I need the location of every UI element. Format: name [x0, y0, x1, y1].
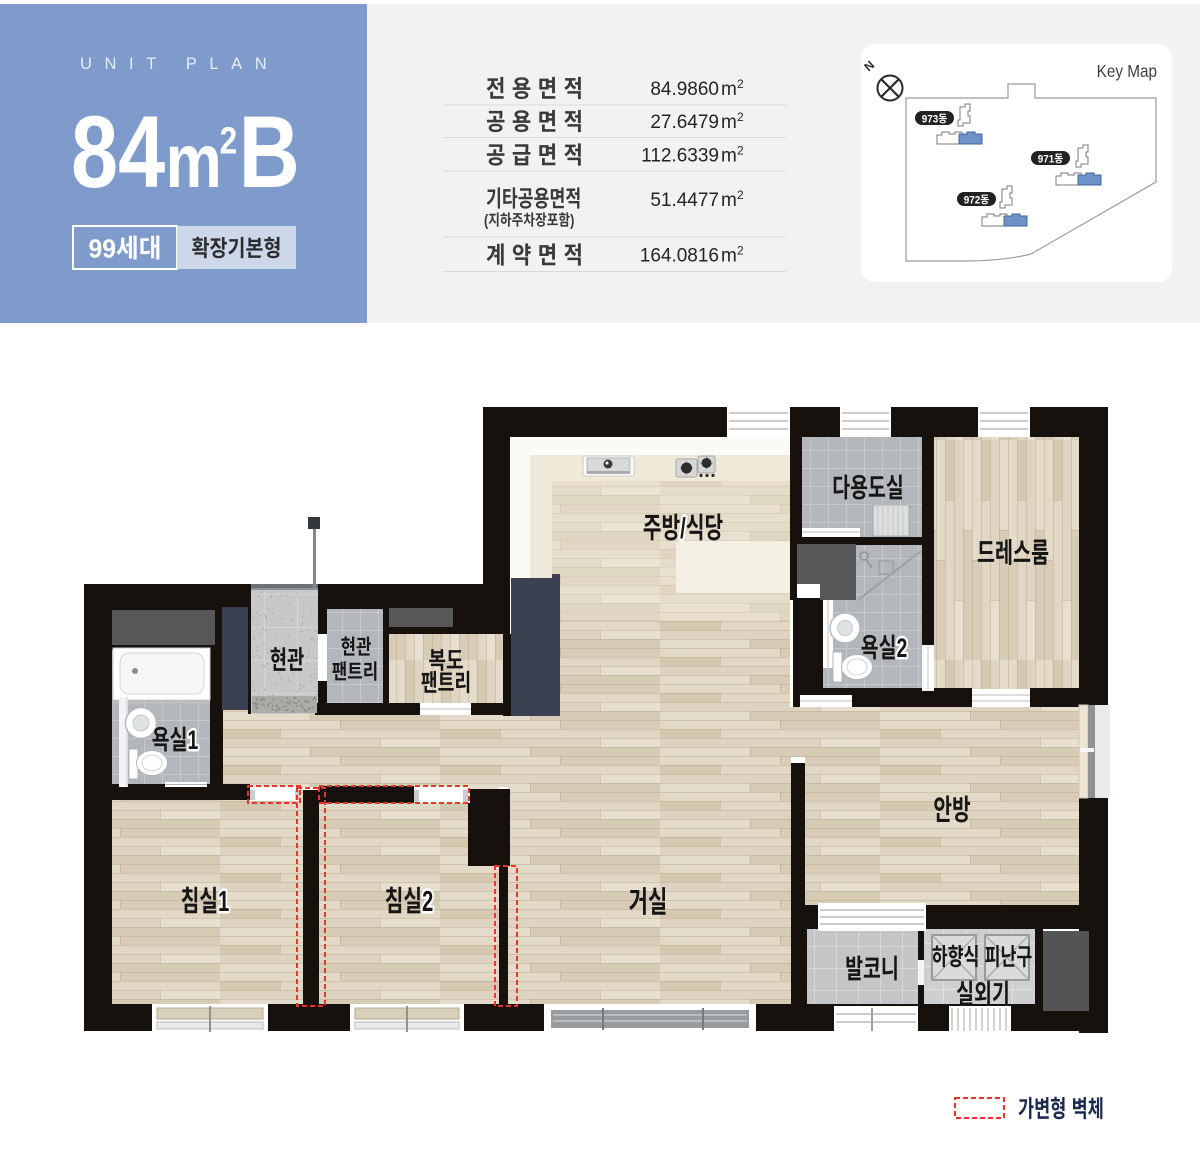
svg-text:164.0816: 164.0816	[640, 246, 719, 267]
svg-text:1: 1	[218, 886, 229, 918]
svg-text:51.4477: 51.4477	[650, 190, 719, 211]
svg-text:972: 972	[964, 195, 981, 207]
svg-text:(: (	[484, 212, 488, 229]
svg-text:971: 971	[1038, 154, 1055, 166]
svg-text:973: 973	[922, 114, 939, 126]
svg-text:2: 2	[422, 886, 433, 918]
svg-text:2: 2	[737, 77, 744, 91]
svg-text:112.6339: 112.6339	[641, 146, 719, 167]
svg-text:m: m	[721, 112, 737, 133]
svg-text:m: m	[721, 146, 737, 167]
svg-text:27.6479: 27.6479	[650, 112, 719, 133]
svg-text:): )	[570, 212, 574, 229]
svg-text:m: m	[166, 118, 222, 203]
svg-text:2: 2	[220, 120, 238, 162]
svg-text:84.9860: 84.9860	[650, 79, 719, 100]
svg-text:m: m	[721, 79, 737, 100]
svg-text:2: 2	[737, 110, 744, 124]
svg-text:84: 84	[71, 95, 165, 209]
svg-text:B: B	[239, 95, 300, 209]
svg-text:2: 2	[737, 144, 744, 158]
svg-text:99: 99	[89, 235, 116, 264]
svg-text:2: 2	[737, 244, 744, 258]
svg-text:2: 2	[737, 188, 744, 202]
svg-text:UNIT PLAN: UNIT PLAN	[80, 55, 279, 73]
svg-text:m: m	[721, 246, 737, 267]
svg-text:2: 2	[896, 633, 907, 663]
svg-text:m: m	[721, 190, 737, 211]
svg-text:1: 1	[187, 725, 198, 755]
svg-text:/: /	[680, 512, 686, 544]
svg-text:Key Map: Key Map	[1097, 61, 1157, 81]
